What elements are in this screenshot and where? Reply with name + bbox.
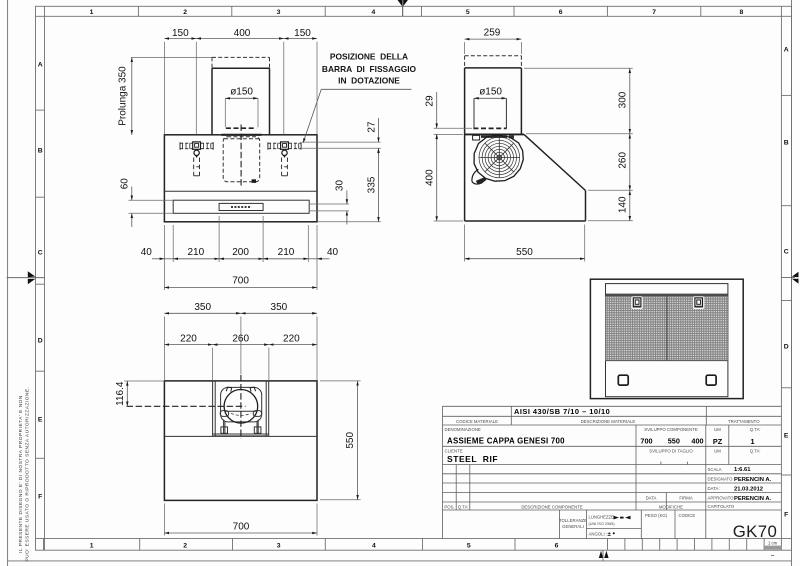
svg-text:PESO (KG): PESO (KG)	[645, 513, 668, 518]
svg-text:PZ: PZ	[713, 437, 723, 446]
svg-text:400: 400	[691, 437, 703, 446]
svg-text:200: 200	[232, 247, 249, 258]
svg-text:2: 2	[183, 543, 187, 550]
svg-text:SVILUPPO DI TAGLIO: SVILUPPO DI TAGLIO	[649, 448, 693, 453]
svg-text:2: 2	[183, 9, 187, 16]
svg-text:SVILUPPO COMPONENTE: SVILUPPO COMPONENTE	[644, 427, 698, 432]
svg-text:E: E	[784, 433, 789, 440]
svg-text:Q.TA': Q.TA'	[750, 427, 761, 432]
svg-text:AISI 430/SB 7/10 – 10/10: AISI 430/SB 7/10 – 10/10	[514, 407, 610, 416]
svg-text:6: 6	[555, 543, 559, 550]
svg-text:GK70: GK70	[733, 522, 778, 541]
svg-text:Q.TA': Q.TA'	[458, 504, 469, 509]
svg-text:350: 350	[194, 302, 211, 313]
svg-text:CODICE: CODICE	[679, 513, 696, 518]
svg-text:350: 350	[271, 302, 288, 313]
svg-text:FIRMA: FIRMA	[679, 496, 693, 501]
svg-text:UM: UM	[714, 427, 721, 432]
svg-text:550: 550	[516, 247, 533, 258]
svg-text:C: C	[38, 250, 43, 257]
svg-text:300: 300	[618, 91, 629, 108]
svg-text:POSIZIONE DELLA: POSIZIONE DELLA	[330, 52, 408, 62]
svg-text:POS.: POS.	[444, 504, 454, 509]
svg-text:220: 220	[180, 333, 197, 344]
svg-text:260: 260	[232, 333, 249, 344]
svg-text:ø150: ø150	[479, 87, 502, 98]
svg-text:DESIGNATO: DESIGNATO	[708, 476, 734, 481]
svg-text:116.4: 116.4	[115, 381, 126, 406]
svg-text:700: 700	[640, 437, 652, 446]
svg-text:A: A	[38, 62, 43, 69]
svg-text:150: 150	[172, 28, 189, 39]
svg-text:B: B	[784, 140, 789, 147]
svg-text:CODICE MATERIALE: CODICE MATERIALE	[456, 419, 498, 424]
svg-text:60: 60	[119, 178, 130, 190]
svg-text:29: 29	[424, 95, 435, 107]
svg-text:MODIFICHE: MODIFICHE	[659, 504, 683, 509]
svg-text:ø150: ø150	[230, 87, 253, 98]
svg-text:4: 4	[372, 543, 376, 550]
svg-text:8: 8	[740, 9, 744, 16]
svg-text:(UNI ISO 2968): (UNI ISO 2968)	[589, 522, 616, 526]
svg-text:STEEL RIF: STEEL RIF	[447, 454, 498, 464]
svg-text:260: 260	[618, 152, 629, 169]
svg-text:1:6.61: 1:6.61	[734, 467, 751, 473]
svg-text:5: 5	[466, 9, 470, 16]
svg-text:TOLLERANZE: TOLLERANZE	[559, 518, 587, 523]
svg-text:BARRA DI FISSAGGIO: BARRA DI FISSAGGIO	[322, 64, 417, 74]
svg-text:ANGOLI :: ANGOLI :	[589, 531, 608, 536]
svg-text:DATA: DATA	[646, 496, 657, 501]
svg-text:LUNGHEZZE:: LUNGHEZZE:	[589, 515, 616, 520]
svg-text:PUO' ESSERE USATO O RIPRODOTTO: PUO' ESSERE USATO O RIPRODOTTO SENZA AUT…	[25, 386, 31, 561]
svg-text:CLIENTE: CLIENTE	[445, 448, 463, 453]
svg-text:F: F	[784, 511, 788, 518]
svg-text:400: 400	[234, 28, 251, 39]
svg-text:5: 5	[467, 543, 471, 550]
svg-text:30: 30	[335, 180, 346, 192]
svg-text:DESCRIZIONE COMPONENTE: DESCRIZIONE COMPONENTE	[521, 504, 582, 509]
svg-text:220: 220	[283, 333, 300, 344]
svg-text:210: 210	[278, 247, 295, 258]
svg-text:DESCRIZIONE MATERIALE: DESCRIZIONE MATERIALE	[581, 419, 636, 424]
svg-text:A: A	[784, 46, 789, 53]
svg-text:ASSIEME CAPPA GENESI 700: ASSIEME CAPPA GENESI 700	[447, 436, 565, 445]
svg-text:Q.TA': Q.TA'	[750, 448, 761, 453]
svg-text:40: 40	[327, 247, 339, 258]
svg-text:APPROVATO: APPROVATO	[708, 495, 735, 500]
svg-text:700: 700	[233, 521, 250, 532]
svg-text:210: 210	[187, 247, 204, 258]
svg-text:40: 40	[141, 247, 153, 258]
svg-text:259: 259	[484, 27, 501, 38]
svg-text:3: 3	[277, 543, 281, 550]
svg-text:3: 3	[277, 9, 281, 16]
svg-text:C: C	[784, 249, 789, 256]
svg-text:GENERALI: GENERALI	[562, 524, 584, 529]
svg-text:1: 1	[750, 437, 754, 446]
svg-text:4: 4	[372, 9, 376, 16]
svg-text:E: E	[38, 417, 43, 424]
svg-text:1 cm: 1 cm	[768, 540, 778, 545]
svg-text:140: 140	[618, 196, 629, 213]
svg-text:PERENCIN A.: PERENCIN A.	[734, 496, 772, 502]
svg-text:PERENCIN A.: PERENCIN A.	[734, 477, 772, 483]
svg-text:IN DOTAZIONE: IN DOTAZIONE	[338, 76, 400, 86]
svg-text:6: 6	[559, 9, 563, 16]
svg-text:B: B	[38, 148, 43, 155]
svg-text:700: 700	[232, 276, 249, 287]
svg-text:D: D	[784, 343, 789, 350]
svg-text:150: 150	[294, 28, 311, 39]
svg-text:400: 400	[424, 169, 435, 186]
svg-text:21.03.2012: 21.03.2012	[734, 486, 763, 492]
svg-text:550: 550	[668, 437, 680, 446]
svg-text:D: D	[38, 338, 43, 345]
svg-text:DATA :: DATA :	[708, 486, 721, 491]
svg-text:7: 7	[652, 9, 656, 16]
svg-text:TRATTAMENTO: TRATTAMENTO	[728, 419, 760, 424]
svg-text:DENOMINAZIONE: DENOMINAZIONE	[445, 427, 481, 432]
svg-text:CAPITOLATO: CAPITOLATO	[708, 504, 735, 509]
svg-text:335: 335	[366, 176, 377, 193]
svg-text:Prolunga 350: Prolunga 350	[117, 66, 128, 126]
svg-text:550: 550	[345, 432, 356, 449]
svg-text:27: 27	[366, 121, 377, 133]
svg-text:1: 1	[90, 543, 94, 550]
svg-text:1: 1	[90, 9, 94, 16]
svg-text:IL PRESENTE DISEGNO E' DI NOST: IL PRESENTE DISEGNO E' DI NOSTRA PROPRIE…	[18, 395, 24, 553]
svg-text:SCALA: SCALA	[708, 467, 722, 472]
svg-text:UM: UM	[714, 448, 721, 453]
svg-text:F: F	[38, 494, 42, 501]
